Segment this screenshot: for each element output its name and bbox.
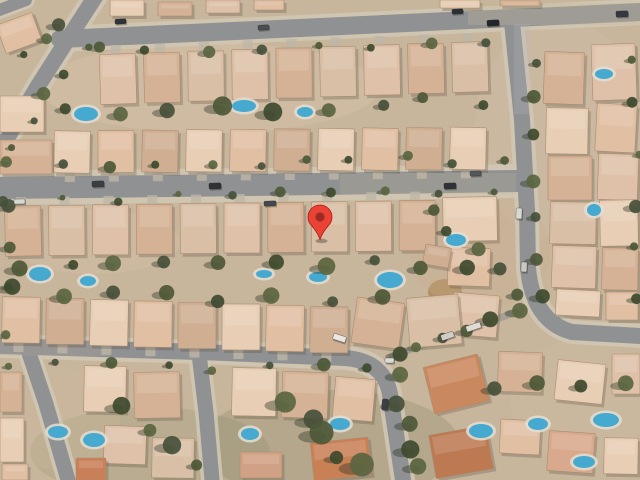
house bbox=[266, 305, 307, 355]
house bbox=[548, 156, 595, 203]
car bbox=[521, 262, 528, 274]
car bbox=[92, 181, 105, 189]
tree bbox=[388, 395, 405, 412]
house bbox=[602, 248, 640, 294]
tree bbox=[113, 397, 131, 415]
house bbox=[110, 0, 147, 19]
house bbox=[351, 297, 408, 353]
tree bbox=[369, 255, 379, 265]
tree bbox=[318, 257, 336, 275]
tree bbox=[532, 59, 541, 68]
house bbox=[364, 45, 403, 99]
house bbox=[407, 43, 447, 97]
pin-dot bbox=[315, 212, 324, 221]
tree bbox=[417, 92, 428, 103]
tree bbox=[310, 421, 334, 445]
tree bbox=[140, 45, 149, 54]
car bbox=[381, 399, 389, 412]
car bbox=[444, 183, 457, 191]
house bbox=[240, 452, 285, 480]
tree bbox=[41, 33, 52, 44]
tree bbox=[500, 156, 509, 165]
tree bbox=[392, 367, 408, 383]
map-viewport[interactable] bbox=[0, 0, 640, 480]
house bbox=[268, 202, 307, 255]
tree bbox=[11, 260, 27, 276]
house bbox=[406, 127, 445, 173]
tree bbox=[375, 289, 391, 305]
tree bbox=[207, 366, 216, 375]
car bbox=[258, 25, 270, 32]
tree bbox=[213, 96, 232, 115]
tree bbox=[211, 295, 224, 308]
swimming-pool bbox=[83, 433, 105, 447]
tree bbox=[31, 117, 38, 124]
car bbox=[487, 20, 500, 28]
car bbox=[385, 358, 395, 365]
tree bbox=[435, 190, 443, 198]
tree bbox=[58, 159, 68, 169]
house bbox=[46, 298, 87, 347]
swimming-pool bbox=[593, 413, 619, 427]
house bbox=[186, 130, 225, 175]
tree bbox=[157, 256, 170, 269]
tree bbox=[114, 198, 122, 206]
tree bbox=[491, 189, 498, 196]
tree bbox=[60, 103, 71, 114]
tree bbox=[401, 440, 419, 458]
tree bbox=[85, 44, 92, 51]
tree bbox=[627, 97, 638, 108]
tree bbox=[106, 357, 118, 369]
tree bbox=[5, 363, 12, 370]
house bbox=[49, 205, 88, 258]
house bbox=[178, 303, 219, 352]
house bbox=[451, 41, 491, 95]
house bbox=[551, 245, 599, 292]
house bbox=[188, 51, 227, 104]
tree bbox=[269, 255, 284, 270]
tree bbox=[60, 195, 66, 201]
tree bbox=[8, 144, 15, 151]
tree bbox=[403, 151, 413, 161]
tree bbox=[275, 391, 296, 412]
house bbox=[355, 201, 394, 254]
tree bbox=[459, 260, 475, 276]
swimming-pool bbox=[256, 270, 272, 278]
house bbox=[274, 129, 313, 174]
tree bbox=[471, 242, 485, 256]
house bbox=[222, 304, 263, 353]
tree bbox=[1, 330, 10, 339]
house bbox=[320, 46, 359, 100]
tree bbox=[175, 191, 181, 197]
tree bbox=[94, 41, 105, 52]
house bbox=[597, 153, 640, 203]
house bbox=[0, 418, 27, 465]
tree bbox=[530, 212, 540, 222]
tree bbox=[105, 255, 121, 271]
house bbox=[134, 372, 183, 422]
tree bbox=[4, 242, 16, 254]
house bbox=[362, 128, 401, 174]
tree bbox=[191, 460, 202, 471]
tree bbox=[393, 347, 408, 362]
tree bbox=[165, 361, 173, 369]
swimming-pool bbox=[29, 267, 51, 281]
tree bbox=[52, 359, 59, 366]
tree bbox=[530, 253, 543, 266]
house bbox=[143, 52, 183, 106]
tree bbox=[211, 255, 226, 270]
tree bbox=[4, 283, 12, 291]
tree bbox=[327, 296, 338, 307]
satellite-imagery bbox=[0, 0, 640, 480]
tree bbox=[315, 42, 322, 49]
house bbox=[180, 203, 219, 256]
tree bbox=[487, 381, 501, 395]
house bbox=[89, 299, 131, 349]
car bbox=[470, 171, 482, 178]
tree bbox=[104, 161, 116, 173]
swimming-pool bbox=[528, 418, 548, 430]
tree bbox=[302, 155, 310, 163]
tree bbox=[263, 103, 282, 122]
tree bbox=[381, 186, 390, 195]
tree bbox=[628, 56, 636, 64]
car bbox=[264, 201, 277, 208]
tree bbox=[257, 44, 268, 55]
house bbox=[604, 438, 640, 478]
tree bbox=[68, 260, 78, 270]
tree bbox=[263, 287, 280, 304]
tree bbox=[441, 226, 452, 237]
tree bbox=[493, 262, 506, 275]
house bbox=[276, 48, 315, 101]
house bbox=[2, 464, 31, 480]
car bbox=[209, 183, 222, 191]
tree bbox=[362, 363, 371, 372]
house bbox=[500, 0, 543, 9]
tree bbox=[447, 159, 456, 168]
tree bbox=[529, 375, 545, 391]
tree bbox=[228, 191, 237, 200]
car bbox=[516, 208, 523, 221]
house bbox=[93, 205, 132, 258]
tree bbox=[37, 87, 50, 100]
tree bbox=[330, 451, 343, 464]
tree bbox=[326, 187, 336, 197]
tree bbox=[481, 38, 490, 47]
tree bbox=[266, 362, 274, 370]
tree bbox=[511, 289, 523, 301]
tree bbox=[20, 51, 27, 58]
tree bbox=[413, 261, 427, 275]
house bbox=[99, 53, 139, 107]
swimming-pool bbox=[587, 204, 601, 216]
tree bbox=[151, 161, 159, 169]
tree bbox=[113, 107, 128, 122]
swimming-pool bbox=[48, 426, 68, 438]
tree bbox=[478, 100, 488, 110]
house bbox=[76, 458, 109, 480]
house bbox=[134, 301, 175, 351]
pin-shadow bbox=[316, 239, 328, 243]
car bbox=[452, 9, 464, 16]
house bbox=[317, 128, 356, 174]
tree bbox=[402, 416, 418, 432]
house bbox=[310, 307, 351, 356]
tree bbox=[367, 44, 375, 52]
car bbox=[115, 19, 127, 26]
swimming-pool bbox=[241, 428, 259, 440]
house bbox=[254, 0, 287, 13]
tree bbox=[527, 129, 539, 141]
tree bbox=[203, 46, 215, 58]
house bbox=[136, 204, 175, 257]
tree bbox=[1, 156, 12, 167]
swimming-pool bbox=[377, 272, 403, 288]
tree bbox=[512, 303, 528, 319]
tree bbox=[630, 242, 638, 250]
house bbox=[142, 130, 181, 176]
tree bbox=[574, 380, 587, 393]
house bbox=[158, 2, 195, 19]
house bbox=[54, 131, 93, 177]
tree bbox=[527, 90, 541, 104]
tree bbox=[52, 18, 65, 31]
house bbox=[232, 49, 271, 102]
house bbox=[555, 289, 603, 320]
tree bbox=[344, 156, 352, 164]
tree bbox=[410, 458, 427, 475]
tree bbox=[350, 453, 374, 477]
tree bbox=[208, 160, 217, 169]
swimming-pool bbox=[74, 107, 98, 121]
tree bbox=[428, 204, 439, 215]
house bbox=[595, 103, 640, 156]
house bbox=[232, 368, 279, 420]
house bbox=[543, 51, 587, 107]
tree bbox=[163, 436, 181, 454]
house bbox=[224, 203, 263, 256]
tree bbox=[159, 285, 174, 300]
swimming-pool bbox=[595, 69, 613, 79]
swimming-pool bbox=[469, 424, 493, 438]
tree bbox=[258, 162, 266, 170]
tree bbox=[144, 424, 157, 437]
swimming-pool bbox=[573, 456, 595, 468]
swimming-pool bbox=[80, 276, 96, 286]
tree bbox=[322, 103, 336, 117]
swimming-pool bbox=[297, 107, 313, 117]
swimming-pool bbox=[232, 100, 256, 112]
tree bbox=[275, 187, 286, 198]
house bbox=[546, 430, 597, 476]
house bbox=[546, 108, 591, 158]
car bbox=[14, 199, 26, 206]
tree bbox=[526, 174, 540, 188]
tree bbox=[426, 38, 438, 50]
tree bbox=[317, 358, 331, 372]
tree bbox=[56, 289, 72, 305]
tree bbox=[411, 342, 421, 352]
tree bbox=[106, 285, 120, 299]
house bbox=[0, 372, 25, 415]
house bbox=[0, 96, 47, 135]
swimming-pool bbox=[330, 418, 350, 430]
tree bbox=[535, 289, 549, 303]
car bbox=[616, 11, 629, 19]
house bbox=[206, 0, 243, 16]
tree bbox=[159, 103, 174, 118]
tree bbox=[482, 311, 498, 327]
tree bbox=[2, 199, 16, 213]
tree bbox=[378, 100, 389, 111]
tree bbox=[618, 375, 634, 391]
tree bbox=[59, 70, 69, 80]
